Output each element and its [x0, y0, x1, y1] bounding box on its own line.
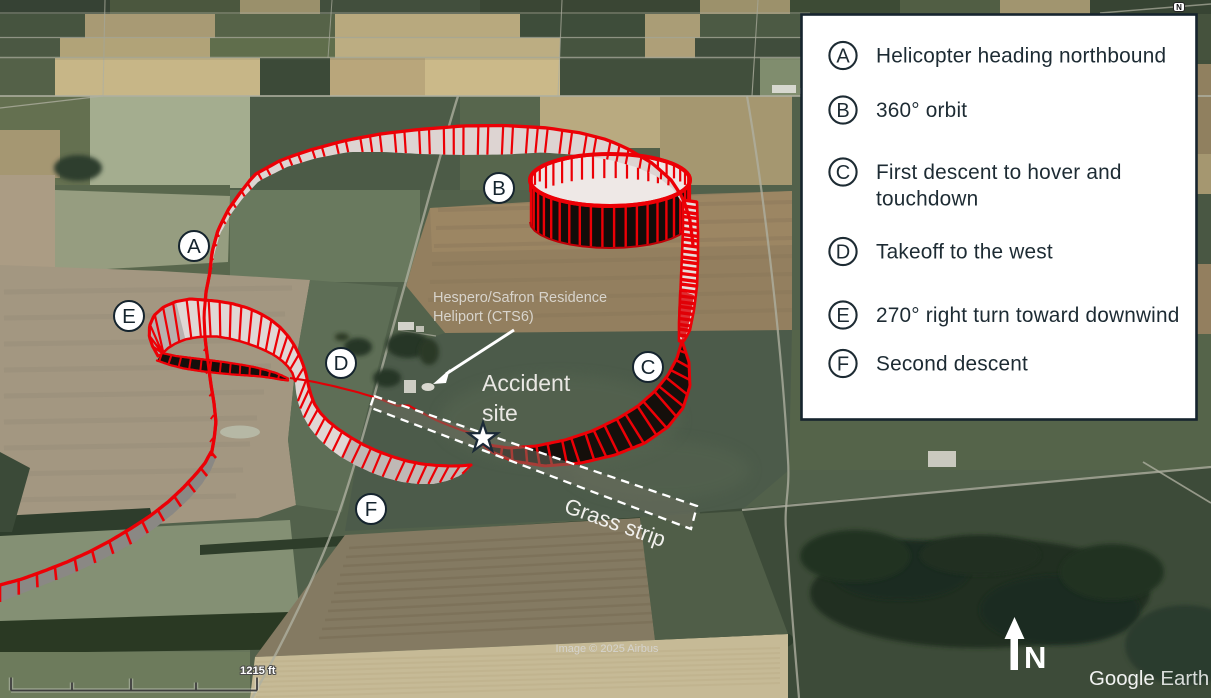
- svg-text:B: B: [836, 100, 849, 122]
- svg-text:270° right turn toward downwin: 270° right turn toward downwind: [876, 304, 1180, 327]
- svg-text:First descent to hover and: First descent to hover and: [876, 161, 1122, 184]
- svg-text:Accident: Accident: [482, 370, 571, 396]
- svg-text:site: site: [482, 400, 518, 426]
- svg-text:Helicopter heading northbound: Helicopter heading northbound: [876, 45, 1166, 68]
- svg-text:E: E: [836, 305, 849, 327]
- svg-text:Heliport (CTS6): Heliport (CTS6): [433, 309, 534, 325]
- svg-text:Image © 2025 Airbus: Image © 2025 Airbus: [556, 643, 659, 655]
- svg-text:F: F: [365, 498, 378, 521]
- svg-text:D: D: [836, 242, 850, 264]
- svg-text:A: A: [187, 235, 201, 258]
- svg-text:C: C: [641, 356, 656, 379]
- svg-text:A: A: [836, 46, 850, 68]
- svg-text:Google Earth: Google Earth: [1089, 668, 1209, 690]
- svg-text:N: N: [1176, 3, 1182, 12]
- svg-text:Second descent: Second descent: [876, 353, 1028, 376]
- svg-text:C: C: [836, 162, 850, 184]
- svg-text:Takeoff to the west: Takeoff to the west: [876, 241, 1053, 264]
- svg-text:B: B: [492, 177, 506, 200]
- svg-text:360° orbit: 360° orbit: [876, 99, 967, 122]
- svg-text:touchdown: touchdown: [876, 188, 978, 211]
- svg-text:Hespero/Safron Residence: Hespero/Safron Residence: [433, 290, 607, 306]
- svg-text:N: N: [1024, 640, 1046, 675]
- svg-text:1215 ft: 1215 ft: [240, 665, 276, 677]
- svg-text:F: F: [837, 354, 849, 376]
- svg-text:E: E: [122, 305, 136, 328]
- svg-text:D: D: [334, 352, 349, 375]
